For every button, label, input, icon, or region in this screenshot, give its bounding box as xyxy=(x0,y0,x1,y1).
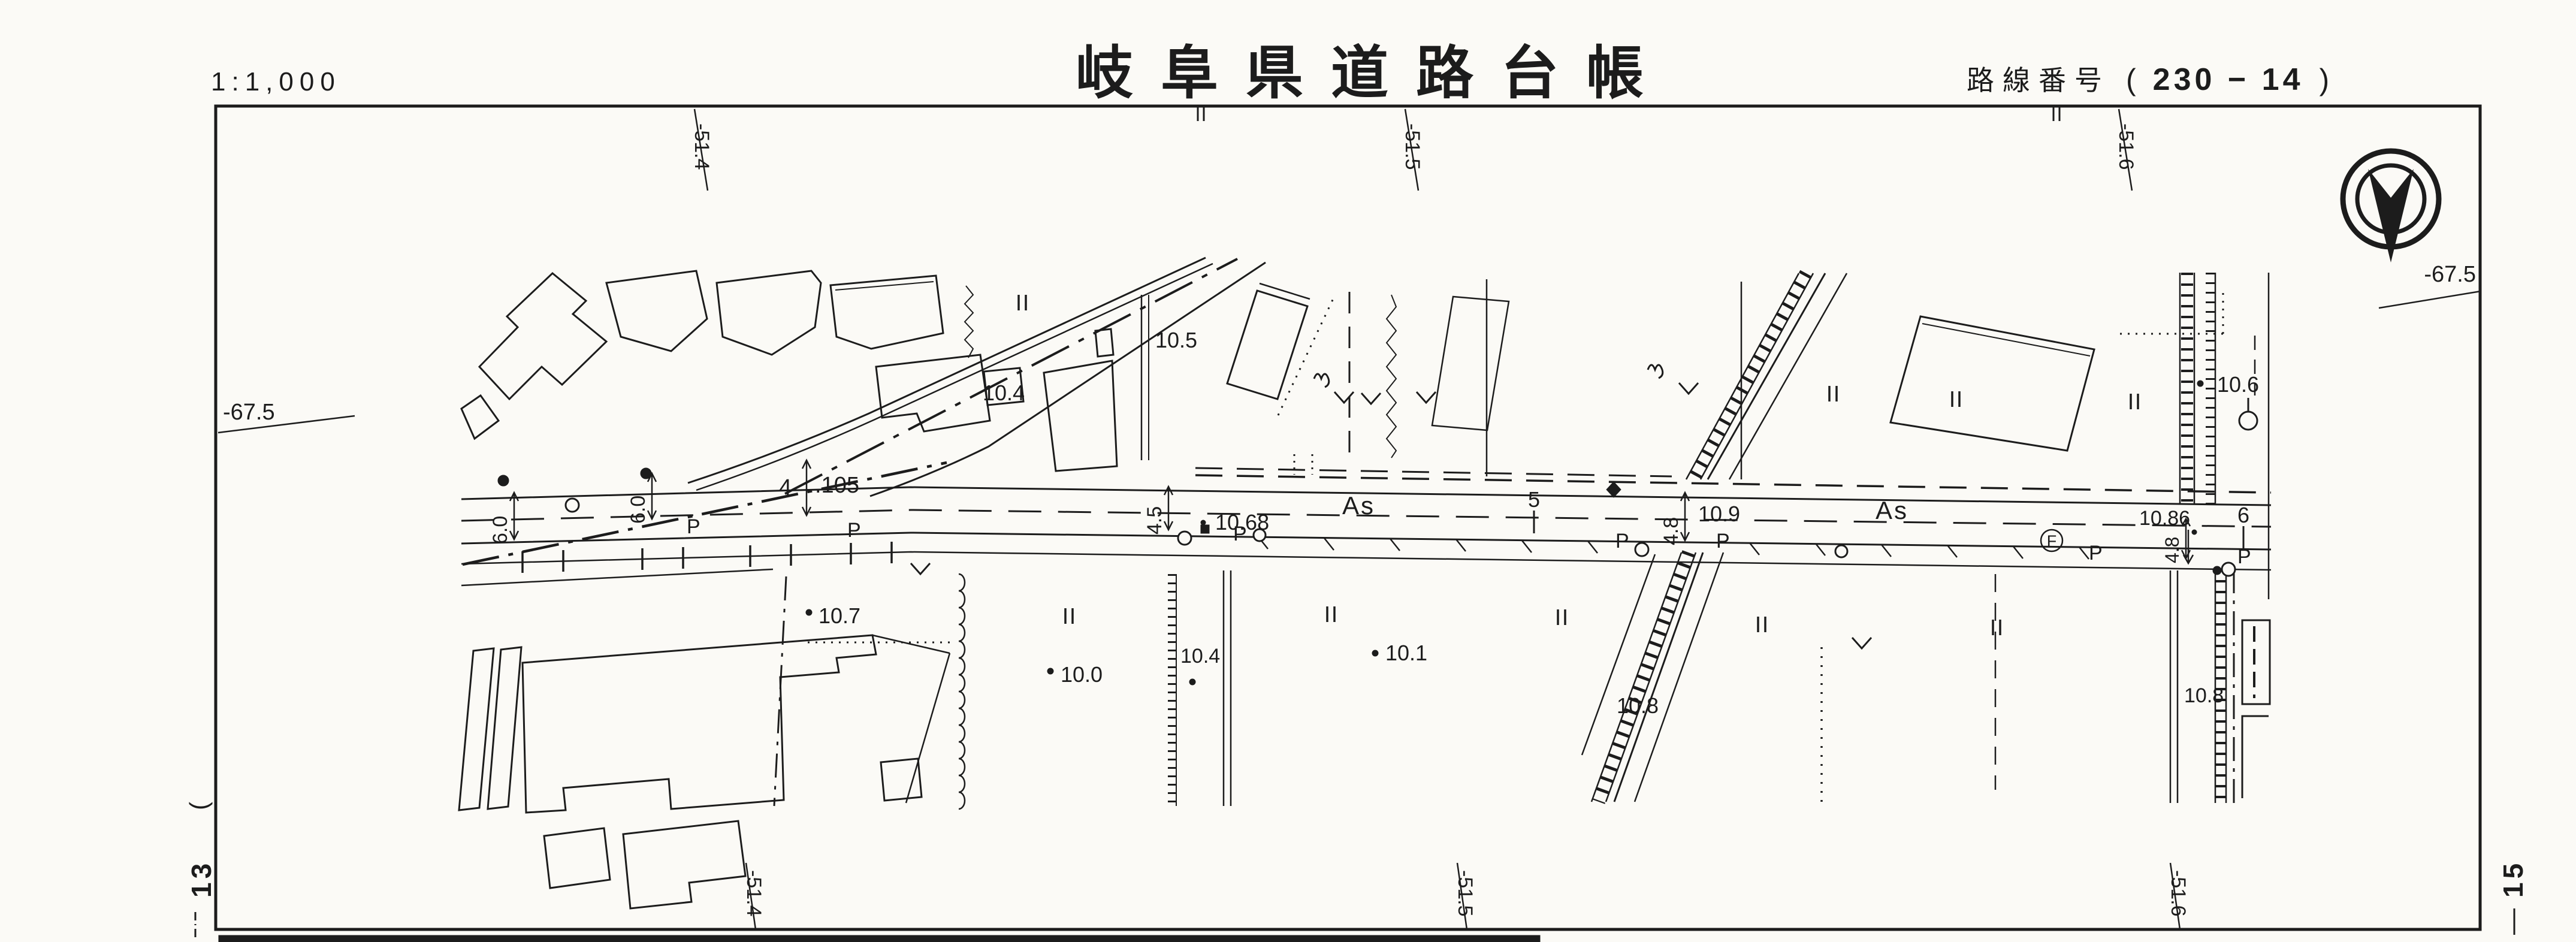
spot-elevation-label: 10.7 xyxy=(819,603,860,628)
map-labels: 10.4 10.5 10.68 10.9 10.86 10.6 10.7 10.… xyxy=(489,328,2259,718)
spot-elevation-label: 10.4 xyxy=(983,381,1025,405)
parking-marker: P xyxy=(687,515,700,538)
grid-label-bottom-1: -51.4 xyxy=(742,870,765,917)
parking-marker: P xyxy=(2237,545,2251,568)
spot-elevation-label: 10.5 xyxy=(1155,328,1197,352)
scan-edge-strip xyxy=(219,935,1540,942)
station-label: 5 xyxy=(1528,487,1540,512)
spot-elevation-label: 10.6 xyxy=(2217,372,2259,397)
station-label: 4 xyxy=(779,475,792,500)
surface-label-as: As xyxy=(1342,491,1375,520)
grid-label-top-2: -51.5 xyxy=(1401,123,1424,170)
width-arrows xyxy=(510,460,2243,563)
width-label: 6.0 xyxy=(489,516,512,544)
sheet-number-next: 15 xyxy=(2498,860,2529,898)
width-label: 6.0 xyxy=(627,496,650,524)
width-label: 4.5 xyxy=(1143,506,1166,535)
spot-elevation-label: 10.8 xyxy=(2184,684,2224,707)
sheet-number-prev: 13 xyxy=(186,860,217,898)
buildings-upper-right xyxy=(1227,279,2255,479)
grid-label-bottom-2: -51.5 xyxy=(1454,870,1476,917)
spot-elevation-label: 10.1 xyxy=(1385,641,1427,665)
branch-road xyxy=(688,258,1266,496)
circled-f-marker: F xyxy=(2047,532,2057,550)
well-symbol xyxy=(2239,398,2257,430)
label-dots xyxy=(806,381,2203,685)
parking-marker: P xyxy=(2089,542,2103,564)
parking-marker: P xyxy=(1233,523,1247,545)
surface-label-as: As xyxy=(1876,496,1908,524)
spot-elevation-label: 10.0 xyxy=(1061,662,1103,687)
road-ledger-map: -51.4 -51.5 -51.6 -51.4 -51.5 -51.6 -67.… xyxy=(0,0,2576,942)
grid-label-left: -67.5 xyxy=(223,400,275,425)
station-offset-label: .105 xyxy=(815,473,859,498)
spot-elevation-label: 10.86 xyxy=(2139,507,2190,530)
main-road xyxy=(461,463,2271,585)
north-arrow-icon xyxy=(2343,151,2439,262)
spot-elevation-label: 10.9 xyxy=(1698,502,1740,526)
spot-elevation-label: 10.4 xyxy=(1180,645,1220,668)
parking-marker: P xyxy=(847,519,861,542)
shrub-symbol xyxy=(1314,365,1663,387)
parking-marker: P xyxy=(1716,530,1730,552)
width-label: 4.8 xyxy=(2161,537,2183,563)
grid-label-bottom-3: -51.6 xyxy=(2167,870,2190,917)
width-label: 4.8 xyxy=(1660,517,1683,545)
grid-label-top-1: -51.4 xyxy=(690,123,713,170)
grid-label-right: -67.5 xyxy=(2424,262,2476,287)
grid-label-top-3: -51.6 xyxy=(2115,123,2137,170)
sheet-paren: ( xyxy=(185,802,213,810)
parking-marker: P xyxy=(1615,530,1629,552)
spot-elevation-label: 10.8 xyxy=(1617,693,1659,718)
station-label: 6 xyxy=(2237,503,2249,527)
